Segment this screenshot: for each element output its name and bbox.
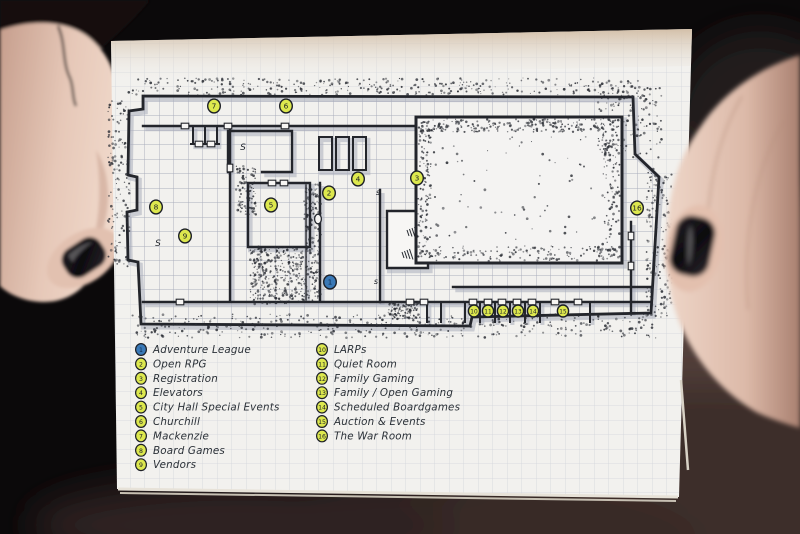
map-marker-number: 1 [328,278,333,287]
stair-label: S [155,239,161,249]
legend-label: Scheduled Boardgames [334,402,461,414]
photo-scene: SSss 12345678910111213141516 1Adventure … [0,0,800,534]
legend-marker-number: 4 [139,390,143,397]
door [176,299,184,305]
map-marker-number: 13 [514,310,522,316]
stair-label: s [374,277,378,286]
map-marker-number: 2 [327,189,332,198]
legend-label: Family / Open Gaming [334,387,453,399]
legend-marker-number: 9 [139,462,143,469]
legend-marker-number: 3 [139,376,143,383]
map-marker: 9 [179,229,192,243]
map-marker: 5 [265,198,278,212]
legend-label: Family Gaming [334,373,414,385]
legend-item: 14Scheduled Boardgames [317,401,461,413]
door [281,123,289,129]
map-marker: 10 [468,305,479,317]
legend-marker-number: 7 [139,433,143,440]
door [280,180,288,186]
map-marker: 1 [324,275,337,289]
door [268,180,276,186]
door [513,299,521,305]
scene-svg: SSss 12345678910111213141516 1Adventure … [0,0,800,534]
door [551,299,559,305]
wall [416,117,622,263]
door [628,232,634,240]
map-marker: 16 [631,201,644,215]
stair-label: s [376,188,380,197]
legend-label: Registration [153,373,218,385]
legend-marker-number: 10 [318,347,326,354]
legend-label: LARPs [334,344,367,356]
legend-label: Board Games [153,445,225,457]
legend-marker-number: 5 [139,405,143,412]
door [469,299,477,305]
legend-marker-number: 16 [318,433,326,440]
door-arc-symbol [315,214,322,224]
legend-label: Auction & Events [333,416,426,428]
door [528,299,536,305]
map-marker: 15 [557,305,568,317]
legend-label: Elevators [153,387,203,399]
map-marker-number: 6 [284,102,289,111]
legend-label: Mackenzie [153,430,209,442]
legend-item: 5City Hall Special Events [136,401,280,413]
map-marker: 3 [411,171,424,185]
map-marker: 4 [352,172,365,186]
map-marker-number: 10 [470,310,478,316]
map-marker-number: 4 [356,175,361,184]
legend-item: 10LARPs [317,344,367,356]
legend-marker-number: 1 [139,347,143,354]
map-marker: 2 [323,186,336,200]
legend-item: 9Vendors [136,459,197,471]
map-marker: 8 [150,200,163,214]
door [181,123,189,129]
legend-label: Quiet Room [334,358,397,370]
map-marker: 7 [208,99,221,113]
door [207,141,215,147]
legend-marker-number: 14 [318,405,326,412]
map-marker-number: 11 [484,310,492,316]
legend-label: Churchill [153,416,200,428]
door [498,299,506,305]
map-marker: 11 [482,305,493,317]
legend-marker-number: 6 [139,419,143,426]
map-marker: 12 [497,305,508,317]
map-marker-number: 7 [212,102,217,111]
legend-marker-number: 13 [318,390,326,397]
legend-marker-number: 15 [318,419,326,426]
legend-label: Open RPG [153,358,207,370]
door [420,299,428,305]
legend-label: Adventure League [152,344,251,356]
map-marker: 6 [280,99,293,113]
legend-marker-number: 8 [139,448,143,455]
legend-item: 13Family / Open Gaming [317,387,454,399]
door [224,123,232,129]
legend-label: City Hall Special Events [153,402,280,414]
map-marker-number: 5 [269,201,274,210]
map-marker-number: 12 [499,310,507,316]
legend-marker-number: 12 [318,376,326,383]
map-marker: 14 [527,305,538,317]
map-marker-number: 15 [559,310,567,316]
legend-marker-number: 2 [139,361,143,368]
legend-marker-number: 11 [318,361,326,368]
map-marker-number: 3 [415,174,420,183]
map-marker-number: 9 [183,232,188,241]
map-marker-number: 16 [632,204,642,213]
map-marker-number: 8 [154,203,159,212]
stair-label: S [240,143,246,153]
legend-label: Vendors [153,459,197,471]
door [227,164,233,172]
door [484,299,492,305]
map-marker-number: 14 [529,310,537,316]
legend-label: The War Room [334,430,412,442]
legend-item: 1Adventure League [136,344,251,356]
door [195,141,203,147]
door [574,299,582,305]
door [628,262,634,270]
map-marker: 13 [512,305,523,317]
door [406,299,414,305]
